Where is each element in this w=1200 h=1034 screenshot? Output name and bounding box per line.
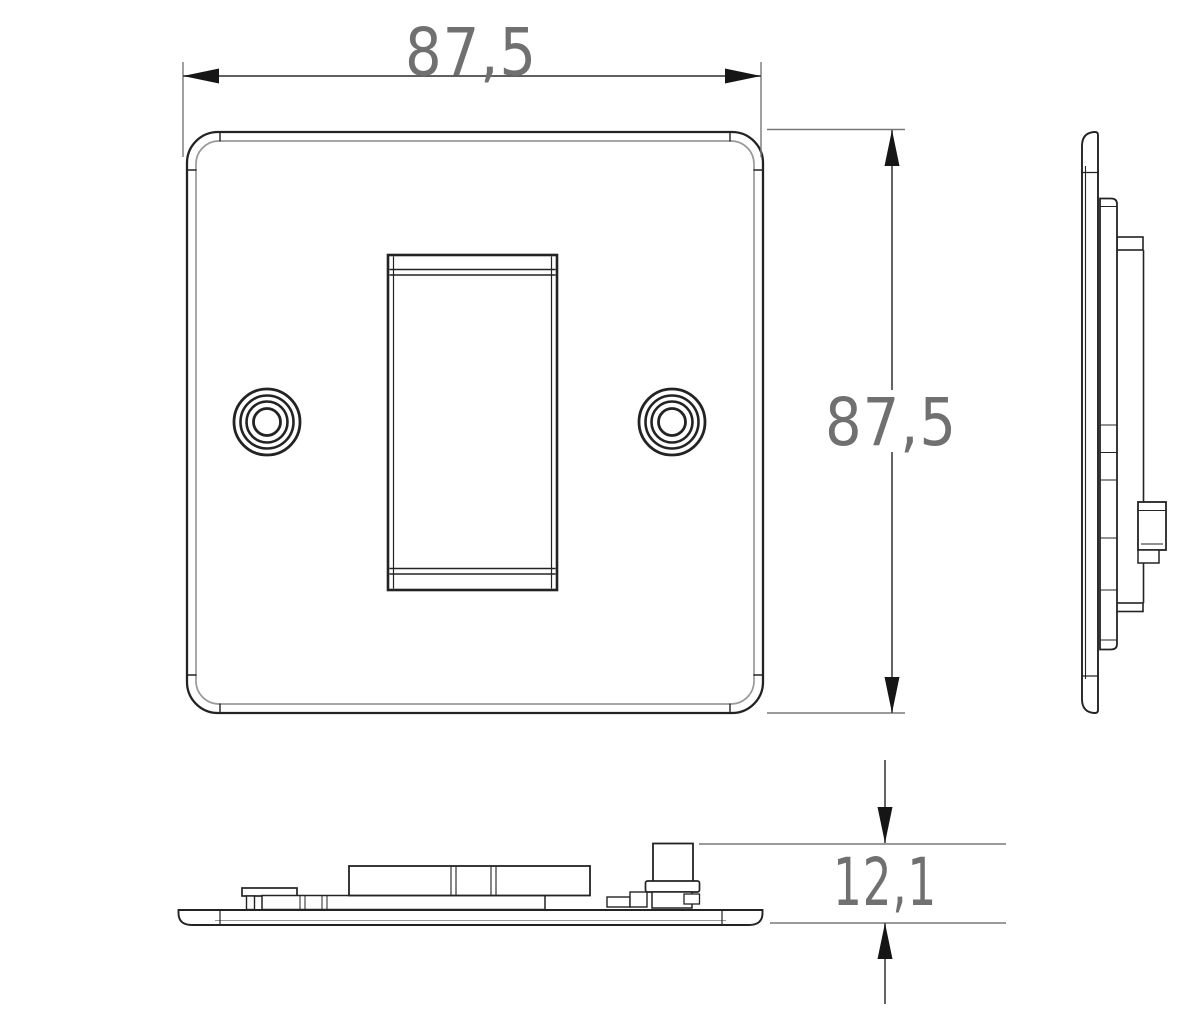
height-arrow-bottom [885, 677, 900, 713]
side-profile-view [1081, 132, 1166, 713]
yoke-top-cap [1117, 237, 1143, 250]
depth-arrow-top [878, 807, 893, 843]
mechanism-housing [349, 866, 590, 896]
rocker-switch [388, 255, 557, 590]
small-block-low [607, 897, 630, 907]
clamp-foot-left [247, 896, 255, 910]
depth-dimension-label: 12,1 [833, 844, 937, 921]
technical-drawing: 87,5 87,5 [0, 0, 1200, 1034]
rocker-profile [1100, 199, 1117, 650]
rocker-outline [388, 255, 557, 590]
terminal-box-step [1138, 550, 1159, 563]
depth-arrow-bottom [878, 923, 893, 959]
front-view [187, 132, 764, 714]
terminal-lip [684, 894, 700, 904]
plate-slab [179, 910, 763, 925]
terminal-cap [646, 881, 700, 892]
terminal-box-profile [1138, 502, 1166, 550]
width-arrow-left [183, 69, 219, 84]
mechanism-base-strip [262, 896, 545, 910]
terminal-tower [653, 844, 693, 882]
width-dimension-label: 87,5 [405, 14, 537, 91]
width-arrow-right [725, 69, 761, 84]
plate-profile [1082, 132, 1098, 713]
height-dimension-label: 87,5 [825, 384, 957, 461]
dimension-height: 87,5 [767, 130, 957, 714]
bottom-profile-view [179, 844, 763, 927]
dimension-depth: 12,1 [699, 760, 1006, 1004]
drawing-canvas: 87,5 87,5 [0, 0, 1200, 1034]
small-block-high [630, 892, 647, 907]
height-arrow-top [885, 130, 900, 166]
